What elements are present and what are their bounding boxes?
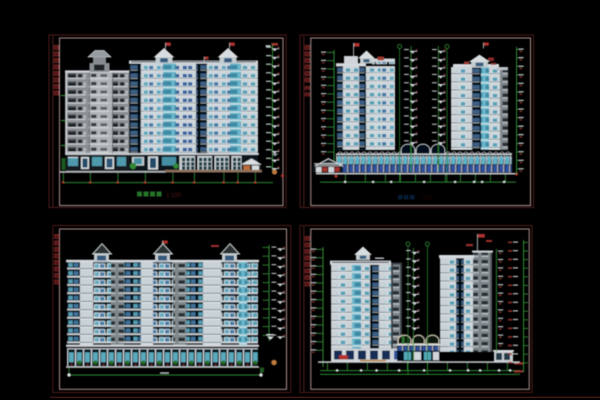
svg-text:1:100: 1:100 — [420, 196, 433, 202]
svg-text:1:100: 1:100 — [166, 193, 182, 199]
